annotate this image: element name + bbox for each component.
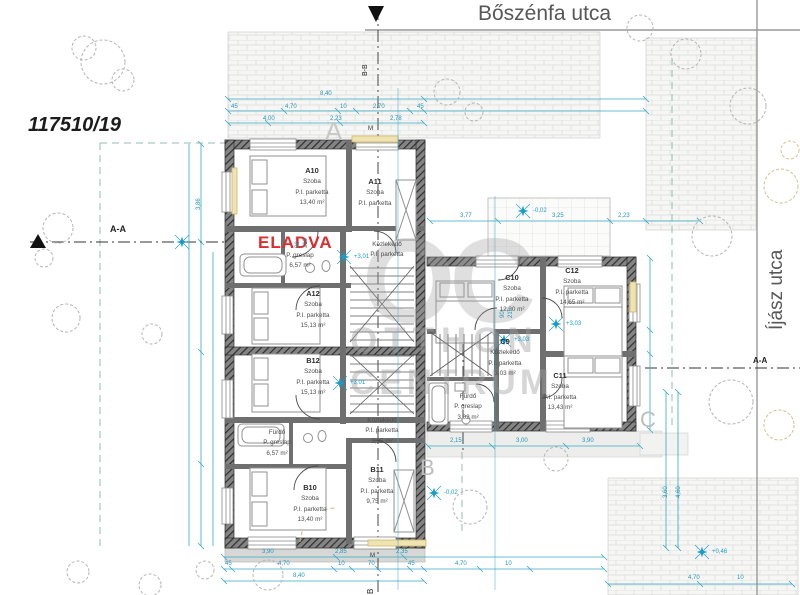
door-size-label: 210 <box>508 308 514 318</box>
room-label-b10: B10SzobaP.I. parketta13,40 m² <box>274 482 346 525</box>
street-name-right: Íjász utca <box>766 250 788 330</box>
dim-label: 3,86 <box>196 198 202 210</box>
area-label-b-hall: KözlekedőP.I. parketta5,95 m² <box>348 416 416 447</box>
dim-label: 8,40 <box>320 91 332 97</box>
dim-label: 10 <box>505 561 512 567</box>
dim-label: 2,23 <box>330 116 342 122</box>
area-label-b-bath: FürdőP. greslap6,57 m² <box>246 428 308 459</box>
level-label: -0,02 <box>533 208 547 214</box>
section-label-aa-left: A-A <box>110 224 126 234</box>
dim-label: 4,70 <box>455 561 467 567</box>
room-label-a12: A12SzobaP.I. parketta15,13 m² <box>278 288 348 331</box>
level-label: +3,01 <box>354 254 369 260</box>
floor-plan-page: OC OTTHON CENTRUM Bőszénfa utca Íjász ut… <box>0 0 800 595</box>
area-label-c-bath: FürdőP. greslap3,02 m² <box>438 392 498 423</box>
dim-label: 3,60 <box>663 486 669 498</box>
dim-label: 10 <box>737 575 744 581</box>
dim-label: 45 <box>417 104 424 110</box>
dim-label: 45 <box>408 561 415 567</box>
room-label-a10: A10SzobaP.I. parketta13,40 m² <box>276 165 348 208</box>
dim-label: 4,70 <box>278 561 290 567</box>
section-marker-left <box>30 234 46 248</box>
dim-label: 70 <box>368 561 375 567</box>
dim-label: 3,90 <box>582 438 594 444</box>
level-label: +3,03 <box>566 321 581 327</box>
dim-label: 4,70 <box>688 575 700 581</box>
room-label-b12: B12SzobaP.I. parketta15,13 m² <box>278 355 348 398</box>
street-name-top: Bőszénfa utca <box>478 2 611 26</box>
door-size-label: 210 <box>303 238 309 248</box>
dim-label: 8,40 <box>293 573 305 579</box>
door-size-label: 90 <box>500 311 506 318</box>
dim-label: 3,00 <box>516 438 528 444</box>
section-marker-top <box>368 6 384 22</box>
level-label: +3,01 <box>350 380 365 386</box>
dim-label: 45 <box>225 561 232 567</box>
area-label-a-greslap: P. greslap6,57 m² <box>272 251 328 272</box>
dim-label: 2,70 <box>373 104 385 110</box>
survey-marker-m-bottom: M <box>370 553 375 559</box>
section-label-aa-right: A-A <box>753 356 767 365</box>
room-label-b11: B11SzobaP.I. parketta9,75 m² <box>344 464 410 507</box>
survey-marker-m-top: M <box>368 126 373 132</box>
dim-label: 3,77 <box>460 213 472 219</box>
yard-label-b: B <box>420 455 435 481</box>
dim-label: 2,35 <box>396 549 408 555</box>
level-label: +3,03 <box>514 337 529 343</box>
section-label-bb-top: B-B <box>362 64 369 76</box>
yard-label-c: C <box>640 407 656 433</box>
level-label: -0,02 <box>444 490 458 496</box>
dim-label: 2,85 <box>335 549 347 555</box>
dim-label: 4,60 <box>676 486 682 498</box>
dim-label: 2,15 <box>450 438 462 444</box>
section-label-b-bottom: B <box>366 589 375 594</box>
dim-label: 4,70 <box>285 104 297 110</box>
door-size-label: 90 <box>295 241 301 248</box>
room-label-c12: C12SzobaP.I. parketta14,65 m² <box>536 265 608 308</box>
dim-label: 45 <box>231 104 238 110</box>
dim-label: 3,90 <box>262 549 274 555</box>
dim-label: 2,78 <box>390 116 402 122</box>
room-label-a11: A11SzobaP.I. parketta <box>342 176 408 209</box>
dim-label: 4,00 <box>263 116 275 122</box>
dim-label: 10 <box>340 104 347 110</box>
dim-label: 2,23 <box>618 213 630 219</box>
dim-label: 10 <box>338 561 345 567</box>
dim-label: 3,25 <box>552 213 564 219</box>
parcel-number: 117510/19 <box>28 114 121 137</box>
level-label: +0,46 <box>712 549 727 555</box>
